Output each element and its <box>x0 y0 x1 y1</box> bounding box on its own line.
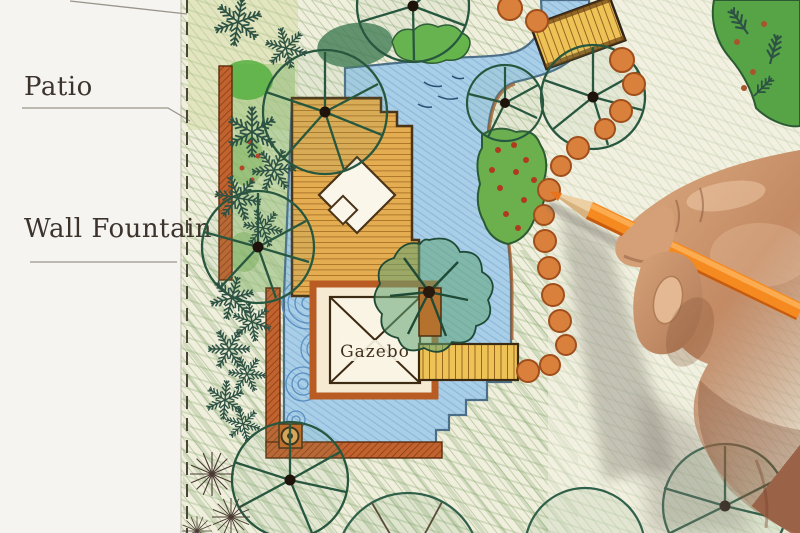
tree <box>232 422 348 533</box>
wall-fountain-label: Wall Fountain <box>24 214 212 244</box>
gazebo-label: Gazebo <box>340 342 410 362</box>
tree <box>202 191 314 303</box>
patio-label: Patio <box>24 72 93 102</box>
tree <box>467 65 543 141</box>
plan-drawing: Patio Wall Fountain <box>0 0 800 533</box>
landscape-plan-photo: Patio Wall Fountain <box>0 0 800 533</box>
